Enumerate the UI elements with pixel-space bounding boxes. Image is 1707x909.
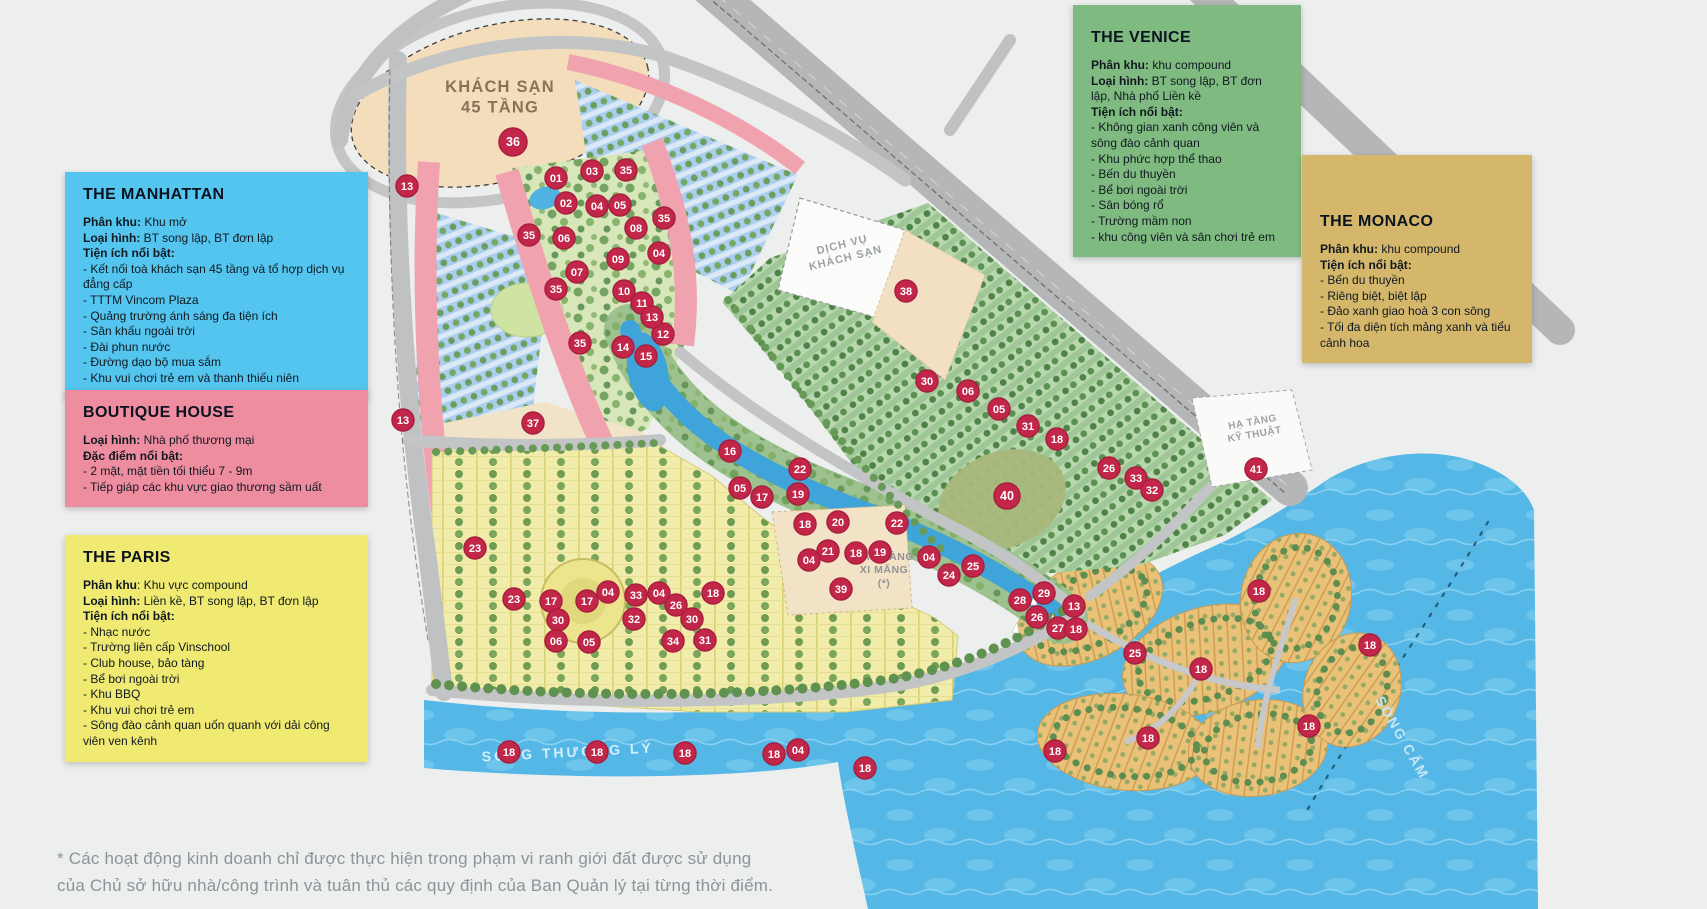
legend-lines: Phân khu: Khu mởLoại hình: BT song lập, …: [83, 215, 350, 387]
map-marker-13: 13: [1063, 595, 1085, 617]
map-marker-05: 05: [729, 477, 751, 499]
map-marker-18: 18: [1046, 428, 1068, 450]
map-marker-18: 18: [1137, 727, 1159, 749]
legend-line: Phân khu: Khu mở: [83, 215, 350, 231]
legend-line: Loại hình: BT song lập, BT đơn lập, Nhà …: [1091, 74, 1283, 105]
svg-text:19: 19: [792, 489, 804, 501]
map-marker-36: 36: [499, 128, 527, 156]
svg-text:18: 18: [707, 588, 719, 600]
svg-text:18: 18: [1253, 586, 1265, 598]
legend-line: - Tiếp giáp các khu vực giao thương sầm …: [83, 480, 350, 496]
legend-line: - Không gian xanh công viên và sông đào …: [1091, 120, 1283, 151]
legend-line: - Trường liên cấp Vinschool: [83, 640, 350, 656]
map-marker-19: 19: [869, 541, 891, 563]
legend-lines: Phân khu: khu compoundLoại hình: BT song…: [1091, 58, 1283, 245]
map-marker-15: 15: [635, 345, 657, 367]
map-marker-35: 35: [615, 159, 637, 181]
svg-text:05: 05: [993, 404, 1005, 416]
svg-text:38: 38: [900, 286, 912, 298]
svg-text:35: 35: [658, 213, 670, 225]
svg-text:12: 12: [657, 329, 669, 341]
svg-text:04: 04: [792, 745, 805, 757]
map-marker-18: 18: [674, 742, 696, 764]
map-marker-18: 18: [1298, 715, 1320, 737]
legend-line: - Nhạc nước: [83, 625, 350, 641]
svg-text:31: 31: [1022, 421, 1034, 433]
map-marker-22: 22: [789, 458, 811, 480]
map-marker-06: 06: [553, 227, 575, 249]
legend-line: - Khu phức hợp thể thao: [1091, 152, 1283, 168]
map-marker-18: 18: [854, 757, 876, 779]
map-marker-32: 32: [623, 608, 645, 630]
legend-line: - 2 mặt, mặt tiền tối thiểu 7 - 9m: [83, 464, 350, 480]
legend-line: Loại hình: BT song lập, BT đơn lập: [83, 231, 350, 247]
map-marker-18: 18: [794, 513, 816, 535]
map-marker-06: 06: [545, 630, 567, 652]
legend-line: Tiện ích nổi bật:: [1320, 258, 1514, 274]
svg-text:04: 04: [653, 588, 666, 600]
svg-text:18: 18: [1303, 721, 1315, 733]
svg-text:04: 04: [591, 201, 604, 213]
map-marker-04: 04: [798, 549, 820, 571]
legend-line: Tiện ích nổi bật:: [83, 246, 350, 262]
map-marker-17: 17: [576, 590, 598, 612]
svg-text:37: 37: [527, 418, 539, 430]
svg-text:33: 33: [1130, 473, 1142, 485]
svg-text:18: 18: [850, 548, 862, 560]
svg-text:26: 26: [1103, 463, 1115, 475]
legend-the-manhattan: THE MANHATTAN Phân khu: Khu mởLoại hình:…: [65, 172, 368, 399]
svg-text:07: 07: [571, 267, 583, 279]
legend-line: - Khu vui chơi trẻ em: [83, 703, 350, 719]
map-marker-31: 31: [1017, 415, 1039, 437]
svg-text:04: 04: [923, 552, 936, 564]
svg-text:18: 18: [1051, 434, 1063, 446]
legend-line: - Sông đào cảnh quan uốn quanh với dải c…: [83, 718, 350, 749]
map-marker-37: 37: [522, 412, 544, 434]
legend-boutique-house: BOUTIQUE HOUSE Loại hình: Nhà phố thương…: [65, 390, 368, 507]
svg-text:18: 18: [1364, 640, 1376, 652]
map-marker-13: 13: [641, 306, 663, 328]
map-marker-40: 40: [994, 483, 1020, 509]
map-marker-05: 05: [578, 631, 600, 653]
map-marker-17: 17: [751, 486, 773, 508]
svg-text:33: 33: [630, 590, 642, 602]
map-marker-18: 18: [763, 743, 785, 765]
map-marker-30: 30: [916, 370, 938, 392]
map-marker-24: 24: [938, 564, 960, 586]
legend-line: - Đường dạo bộ mua sắm: [83, 355, 350, 371]
svg-text:18: 18: [859, 763, 871, 775]
map-marker-23: 23: [503, 588, 525, 610]
svg-text:31: 31: [699, 635, 711, 647]
legend-line: Loại hình: Liền kề, BT song lập, BT đơn …: [83, 594, 350, 610]
legend-line: - Kết nối toà khách sạn 45 tầng và tổ hợ…: [83, 262, 350, 293]
map-marker-25: 25: [1124, 642, 1146, 664]
map-marker-35: 35: [518, 224, 540, 246]
svg-text:17: 17: [581, 596, 593, 608]
legend-line: Loại hình: Nhà phố thương mại: [83, 433, 350, 449]
svg-text:24: 24: [943, 570, 956, 582]
legend-line: - TTTM Vincom Plaza: [83, 293, 350, 309]
map-marker-18: 18: [702, 582, 724, 604]
legend-the-venice: THE VENICE Phân khu: khu compoundLoại hì…: [1073, 5, 1301, 257]
svg-text:30: 30: [921, 376, 933, 388]
svg-text:32: 32: [628, 614, 640, 626]
map-marker-03: 03: [581, 160, 603, 182]
svg-text:04: 04: [653, 248, 666, 260]
legend-line: - Đảo xanh giao hoà 3 con sông: [1320, 304, 1514, 320]
svg-text:08: 08: [630, 223, 642, 235]
legend-lines: Phân khu: Khu vực compoundLoại hình: Liề…: [83, 578, 350, 750]
map-marker-28: 28: [1009, 589, 1031, 611]
map-marker-18: 18: [498, 741, 520, 763]
map-marker-32: 32: [1141, 479, 1163, 501]
svg-text:30: 30: [686, 614, 698, 626]
svg-text:26: 26: [1031, 612, 1043, 624]
legend-line: - Khu BBQ: [83, 687, 350, 703]
svg-text:18: 18: [1142, 733, 1154, 745]
svg-text:18: 18: [591, 747, 603, 759]
svg-text:14: 14: [617, 342, 630, 354]
map-marker-08: 08: [625, 217, 647, 239]
map-marker-26: 26: [1026, 606, 1048, 628]
svg-text:05: 05: [583, 637, 595, 649]
legend-title: THE MONACO: [1320, 213, 1514, 231]
svg-text:35: 35: [550, 284, 562, 296]
svg-text:28: 28: [1014, 595, 1026, 607]
map-marker-19: 19: [787, 483, 809, 505]
legend-line: - Sân khấu ngoài trời: [83, 324, 350, 340]
map-marker-13: 13: [392, 409, 414, 431]
legend-line: - Khu vui chơi trẻ em và thanh thiếu niê…: [83, 371, 350, 387]
legend-line: Phân khu: khu compound: [1091, 58, 1283, 74]
legend-title: THE PARIS: [83, 549, 350, 567]
svg-text:17: 17: [545, 596, 557, 608]
svg-text:06: 06: [962, 386, 974, 398]
footnote-line-2: của Chủ sở hữu nhà/công trình và tuân th…: [57, 872, 773, 899]
svg-text:29: 29: [1038, 588, 1050, 600]
svg-text:36: 36: [506, 135, 520, 149]
svg-text:39: 39: [835, 584, 847, 596]
svg-text:17: 17: [756, 492, 768, 504]
map-marker-29: 29: [1033, 582, 1055, 604]
svg-text:22: 22: [794, 464, 806, 476]
svg-text:13: 13: [401, 181, 413, 193]
map-marker-06: 06: [957, 380, 979, 402]
svg-text:18: 18: [1049, 746, 1061, 758]
svg-text:18: 18: [1070, 624, 1082, 636]
map-marker-26: 26: [1098, 457, 1120, 479]
svg-text:13: 13: [397, 415, 409, 427]
map-marker-09: 09: [607, 248, 629, 270]
svg-text:18: 18: [679, 748, 691, 760]
legend-lines: Phân khu: khu compoundTiện ích nổi bật:-…: [1320, 242, 1514, 351]
legend-line: - Riêng biệt, biệt lập: [1320, 289, 1514, 305]
masterplan-page: KHÁCH SẠN45 TẦNGDỊCH VỤKHÁCH SẠNHẠ TẦNGK…: [0, 0, 1707, 909]
svg-text:04: 04: [602, 587, 615, 599]
legend-the-paris: THE PARIS Phân khu: Khu vực compoundLoại…: [65, 535, 368, 762]
legend-line: - Tối đa diện tích mảng xanh và tiểu cản…: [1320, 320, 1514, 351]
map-marker-02: 02: [555, 192, 577, 214]
map-marker-30: 30: [681, 608, 703, 630]
legend-line: Tiện ích nổi bật:: [1091, 105, 1283, 121]
legend-line: Tiện ích nổi bật:: [83, 609, 350, 625]
svg-text:06: 06: [550, 636, 562, 648]
map-marker-04: 04: [586, 195, 608, 217]
map-marker-18: 18: [1248, 580, 1270, 602]
svg-text:19: 19: [874, 547, 886, 559]
svg-text:16: 16: [724, 446, 736, 458]
svg-text:05: 05: [734, 483, 746, 495]
map-marker-13: 13: [396, 175, 418, 197]
map-marker-07: 07: [566, 261, 588, 283]
legend-title: THE MANHATTAN: [83, 186, 350, 204]
svg-text:20: 20: [832, 517, 844, 529]
svg-text:10: 10: [618, 286, 630, 298]
svg-text:23: 23: [508, 594, 520, 606]
map-marker-35: 35: [653, 207, 675, 229]
svg-text:25: 25: [1129, 648, 1141, 660]
legend-line: - Bể bơi ngoài trời: [83, 672, 350, 688]
map-marker-05: 05: [609, 194, 631, 216]
legend-line: Đặc điểm nổi bật:: [83, 449, 350, 465]
footnote: * Các hoạt động kinh doanh chỉ được thực…: [57, 845, 773, 899]
map-marker-25: 25: [962, 555, 984, 577]
svg-text:18: 18: [503, 747, 515, 759]
legend-line: Phân khu: khu compound: [1320, 242, 1514, 258]
legend-line: Phân khu: Khu vực compound: [83, 578, 350, 594]
legend-lines: Loại hình: Nhà phố thương mạiĐặc điểm nổ…: [83, 433, 350, 495]
map-marker-35: 35: [545, 278, 567, 300]
svg-text:03: 03: [586, 166, 598, 178]
map-marker-38: 38: [895, 280, 917, 302]
map-marker-04: 04: [918, 546, 940, 568]
svg-text:18: 18: [1195, 664, 1207, 676]
svg-text:35: 35: [620, 165, 632, 177]
legend-line: - Club house, bảo tàng: [83, 656, 350, 672]
svg-text:05: 05: [614, 200, 626, 212]
legend-line: - Đài phun nước: [83, 340, 350, 356]
map-marker-05: 05: [988, 398, 1010, 420]
map-marker-18: 18: [1044, 740, 1066, 762]
legend-line: - khu công viên và sân chơi trẻ em: [1091, 230, 1283, 246]
map-marker-18: 18: [1359, 634, 1381, 656]
svg-text:27: 27: [1052, 623, 1064, 635]
svg-text:02: 02: [560, 198, 572, 210]
legend-the-monaco: THE MONACO Phân khu: khu compoundTiện íc…: [1302, 155, 1532, 363]
map-marker-35: 35: [569, 332, 591, 354]
svg-text:26: 26: [670, 600, 682, 612]
svg-text:35: 35: [574, 338, 586, 350]
legend-line: - Trường mầm non: [1091, 214, 1283, 230]
map-marker-14: 14: [612, 336, 634, 358]
map-marker-04: 04: [597, 581, 619, 603]
svg-text:41: 41: [1250, 464, 1262, 476]
map-marker-34: 34: [662, 630, 684, 652]
map-marker-39: 39: [830, 578, 852, 600]
map-marker-18: 18: [586, 741, 608, 763]
svg-text:15: 15: [640, 351, 652, 363]
map-marker-18: 18: [845, 542, 867, 564]
map-marker-04: 04: [648, 242, 670, 264]
map-marker-18: 18: [1065, 618, 1087, 640]
map-marker-23: 23: [464, 537, 486, 559]
map-marker-41: 41: [1245, 458, 1267, 480]
legend-line: - Quảng trường ánh sáng đa tiện ích: [83, 309, 350, 325]
svg-text:01: 01: [550, 173, 562, 185]
map-marker-16: 16: [719, 440, 741, 462]
svg-text:23: 23: [469, 543, 481, 555]
svg-text:25: 25: [967, 561, 979, 573]
svg-text:04: 04: [803, 555, 816, 567]
legend-line: - Sân bóng rổ: [1091, 198, 1283, 214]
map-marker-31: 31: [694, 629, 716, 651]
map-marker-30: 30: [547, 609, 569, 631]
map-marker-04: 04: [787, 739, 809, 761]
legend-line: - Bến du thuyền: [1320, 273, 1514, 289]
svg-text:18: 18: [799, 519, 811, 531]
map-marker-18: 18: [1190, 658, 1212, 680]
svg-text:18: 18: [768, 749, 780, 761]
svg-text:35: 35: [523, 230, 535, 242]
svg-text:30: 30: [552, 615, 564, 627]
svg-text:32: 32: [1146, 485, 1158, 497]
svg-text:21: 21: [822, 546, 834, 558]
svg-text:13: 13: [1068, 601, 1080, 613]
svg-text:06: 06: [558, 233, 570, 245]
legend-title: BOUTIQUE HOUSE: [83, 404, 350, 422]
svg-text:09: 09: [612, 254, 624, 266]
svg-text:13: 13: [646, 312, 658, 324]
legend-line: - Bến du thuyền: [1091, 167, 1283, 183]
legend-line: - Bể bơi ngoài trời: [1091, 183, 1283, 199]
map-marker-33: 33: [625, 584, 647, 606]
legend-title: THE VENICE: [1091, 29, 1283, 47]
map-marker-22: 22: [886, 512, 908, 534]
svg-text:40: 40: [1000, 489, 1014, 503]
svg-text:34: 34: [667, 636, 680, 648]
map-marker-01: 01: [545, 167, 567, 189]
map-marker-20: 20: [827, 511, 849, 533]
footnote-line-1: * Các hoạt động kinh doanh chỉ được thực…: [57, 845, 773, 872]
svg-text:22: 22: [891, 518, 903, 530]
